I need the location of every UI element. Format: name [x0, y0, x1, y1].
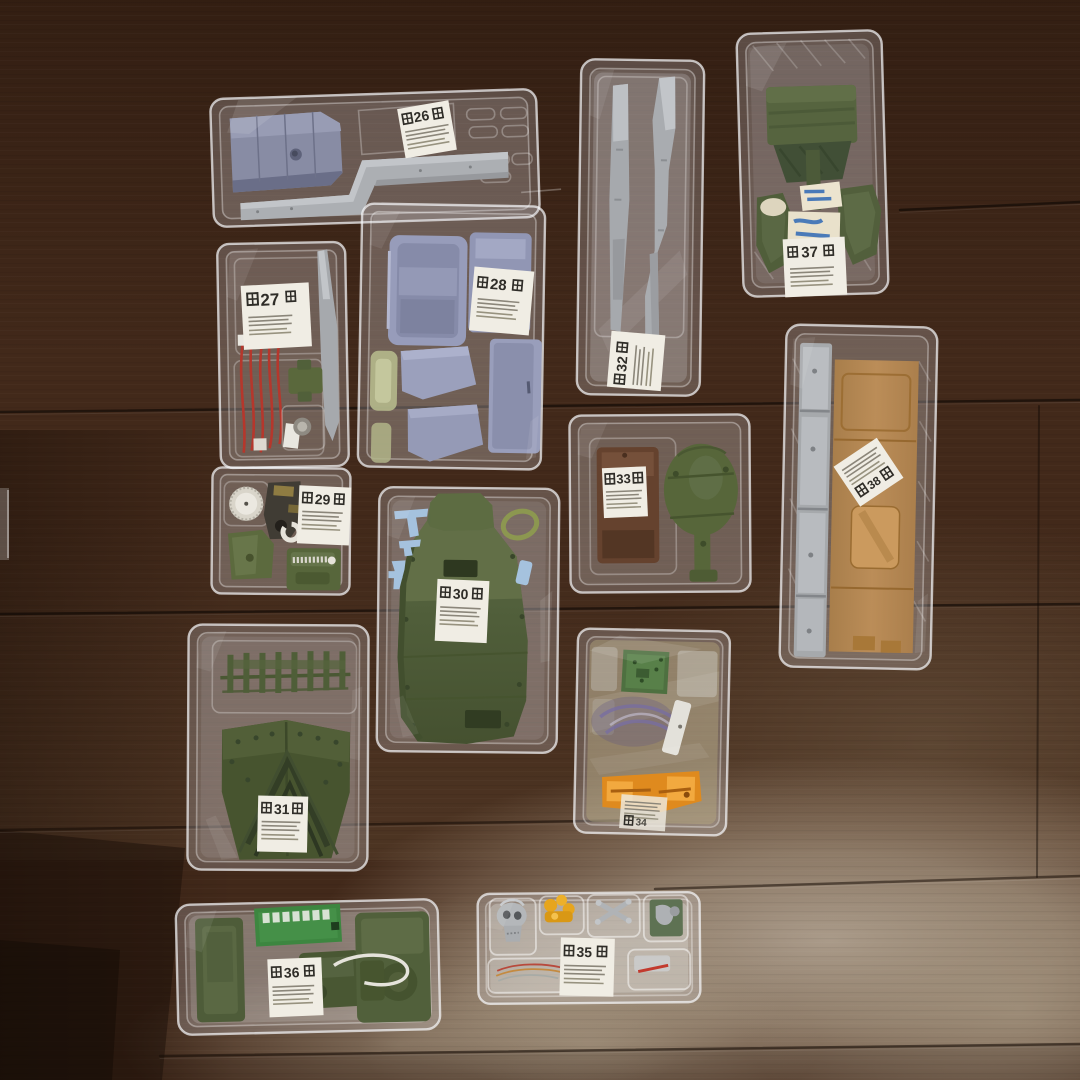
svg-text:28: 28: [489, 276, 507, 294]
svg-text:36: 36: [284, 964, 300, 981]
svg-text:35: 35: [576, 944, 592, 960]
svg-text:37: 37: [801, 244, 818, 262]
svg-text:27: 27: [260, 290, 280, 310]
svg-text:33: 33: [616, 471, 631, 487]
svg-text:34: 34: [635, 817, 647, 829]
svg-text:32: 32: [613, 355, 630, 372]
svg-text:31: 31: [274, 801, 290, 817]
svg-text:30: 30: [452, 586, 468, 603]
svg-text:26: 26: [412, 107, 430, 125]
svg-text:29: 29: [314, 491, 330, 508]
